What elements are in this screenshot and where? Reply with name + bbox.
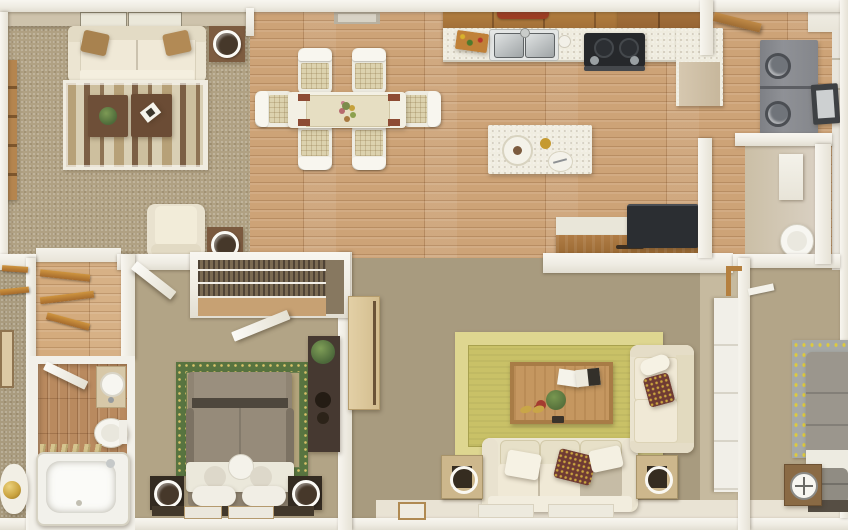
placemat <box>388 119 400 126</box>
closet-sliding-door <box>714 298 738 492</box>
chair-back <box>352 157 386 170</box>
top-wall <box>0 0 848 12</box>
side-roll <box>186 408 194 466</box>
dining-chair <box>298 124 332 170</box>
floor-mat <box>548 504 614 518</box>
side-table <box>636 455 678 499</box>
floor-mat <box>478 504 534 518</box>
low-cabinet <box>36 248 121 262</box>
skylight-panel <box>128 12 182 27</box>
bathtub <box>36 452 130 526</box>
foot-bench <box>152 504 314 518</box>
table-runner <box>306 95 390 127</box>
round-cushion <box>204 466 226 488</box>
toilet <box>780 224 814 258</box>
round-cushion <box>250 466 272 488</box>
backsplash-panel <box>556 217 636 237</box>
sink-basin <box>494 33 524 58</box>
dresser <box>308 336 340 452</box>
dresser-plant <box>311 340 335 364</box>
floral-centerpiece <box>342 102 350 110</box>
loveseat-back <box>676 355 694 443</box>
side-table <box>209 26 245 62</box>
remote <box>552 416 564 423</box>
dresser-decor <box>315 392 331 408</box>
sofa-three-seat <box>482 438 638 512</box>
sink-bowl <box>100 372 125 397</box>
tub-faucet <box>106 459 115 468</box>
slippers <box>519 405 532 415</box>
magazine-print <box>146 108 156 118</box>
sofa <box>68 26 206 82</box>
faucet <box>108 397 114 403</box>
console-groove <box>373 301 376 405</box>
dinner-plate <box>502 135 533 166</box>
chair-back <box>428 91 441 127</box>
wall-closet2 <box>738 258 750 530</box>
unit-divider <box>760 86 818 89</box>
kitchen-island <box>488 125 592 174</box>
vanity-cabinet <box>779 154 803 200</box>
armchair <box>147 204 205 258</box>
gold-sphere-lamp <box>3 481 21 499</box>
nightstand <box>784 464 822 506</box>
tv-monitor <box>627 204 699 248</box>
closet-gap <box>326 260 344 314</box>
dining-chair <box>403 91 441 127</box>
counter-return-face <box>679 62 720 106</box>
chair-pad <box>405 95 427 123</box>
chair-back <box>255 91 268 127</box>
white-pillow <box>504 449 542 481</box>
wall-powder-right <box>815 144 831 264</box>
toilet-tank <box>119 420 127 444</box>
burner <box>594 38 614 58</box>
armchair-cushion <box>155 206 197 246</box>
skylight-panel <box>80 12 127 27</box>
duvet-fold <box>806 424 848 426</box>
tub-drain <box>76 500 82 506</box>
chair-pad <box>301 130 329 156</box>
side-roll <box>286 408 294 466</box>
chair-pad <box>301 63 329 89</box>
utensil <box>553 158 567 164</box>
wall-art <box>0 330 14 388</box>
coffee-table <box>131 94 172 137</box>
floorplan-render <box>0 0 848 530</box>
dining-chair <box>352 48 386 94</box>
chair-back <box>352 48 386 61</box>
ring-lamp <box>213 30 241 58</box>
chair-pad <box>355 63 383 89</box>
gold-dish <box>540 138 551 149</box>
compass-clock <box>790 472 818 500</box>
placemat <box>298 119 310 126</box>
wall-stub-living-dining <box>246 8 254 36</box>
oven-handle <box>584 66 645 71</box>
tv-console <box>348 296 380 410</box>
bench-mat <box>184 506 222 519</box>
sink-basin <box>525 33 555 58</box>
pillow <box>192 486 236 506</box>
bench-mat <box>228 506 274 519</box>
small-plate <box>548 151 573 172</box>
plate-food <box>513 146 522 155</box>
closet-shelf <box>198 296 326 316</box>
plate-on-counter <box>558 35 571 48</box>
closet-trim <box>726 266 742 271</box>
dining-chair <box>352 124 386 170</box>
loveseat <box>630 345 694 453</box>
coffee-table <box>510 362 613 424</box>
coffee-table <box>88 95 128 137</box>
red-flowers <box>536 400 546 410</box>
chair-back <box>298 48 332 61</box>
dryer-door-ring <box>765 101 791 127</box>
placemat <box>298 94 310 101</box>
toilet-seat <box>101 424 121 442</box>
closet-hanging-slats <box>198 260 326 298</box>
open-appliance-door <box>811 83 841 125</box>
placemat <box>388 94 400 101</box>
faucet <box>520 28 530 38</box>
toilet-seat <box>787 231 807 251</box>
magazine-cover <box>587 368 601 386</box>
double-sink <box>489 29 559 61</box>
dining-chair <box>298 48 332 94</box>
chair-back <box>298 157 332 170</box>
dresser-decor <box>317 412 329 424</box>
pillow <box>242 486 286 506</box>
wall-nook-right <box>698 138 712 258</box>
potted-plant <box>99 107 117 125</box>
duvet-fold <box>806 392 848 394</box>
stove-knob <box>590 56 599 65</box>
ring-lamp <box>450 466 478 494</box>
magazine <box>140 102 161 123</box>
magazine <box>575 368 601 387</box>
dark-throw-band <box>192 398 288 408</box>
chair-pad <box>355 130 383 156</box>
vanity-sink <box>96 366 126 408</box>
wall-laundry-left <box>700 0 713 55</box>
clock-hand <box>795 485 813 487</box>
side-table <box>441 455 483 499</box>
washer-door-ring <box>765 53 791 79</box>
bed <box>186 370 294 508</box>
ceiling-vent <box>334 12 380 24</box>
ring-lamp <box>645 466 673 494</box>
stove-knob <box>630 56 639 65</box>
floor-mat <box>398 502 426 520</box>
cooktop <box>584 33 645 67</box>
table-plant <box>546 390 566 410</box>
washer-dryer-stack <box>760 40 818 134</box>
left-wall <box>0 12 8 258</box>
door-glass <box>816 89 835 118</box>
burner <box>619 38 639 58</box>
vent-panel <box>338 14 376 22</box>
